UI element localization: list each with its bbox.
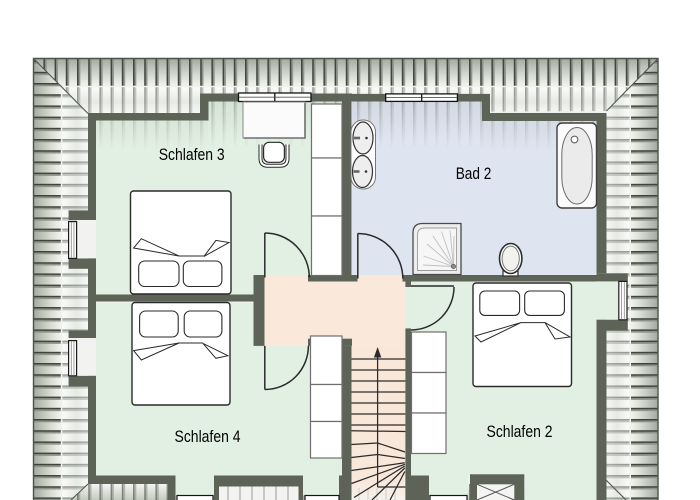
svg-text:Schlafen 4: Schlafen 4 xyxy=(175,427,241,446)
svg-text:Schlafen 2: Schlafen 2 xyxy=(487,422,553,441)
svg-text:Bad 2: Bad 2 xyxy=(456,164,492,183)
svg-text:Schlafen 3: Schlafen 3 xyxy=(159,145,225,164)
